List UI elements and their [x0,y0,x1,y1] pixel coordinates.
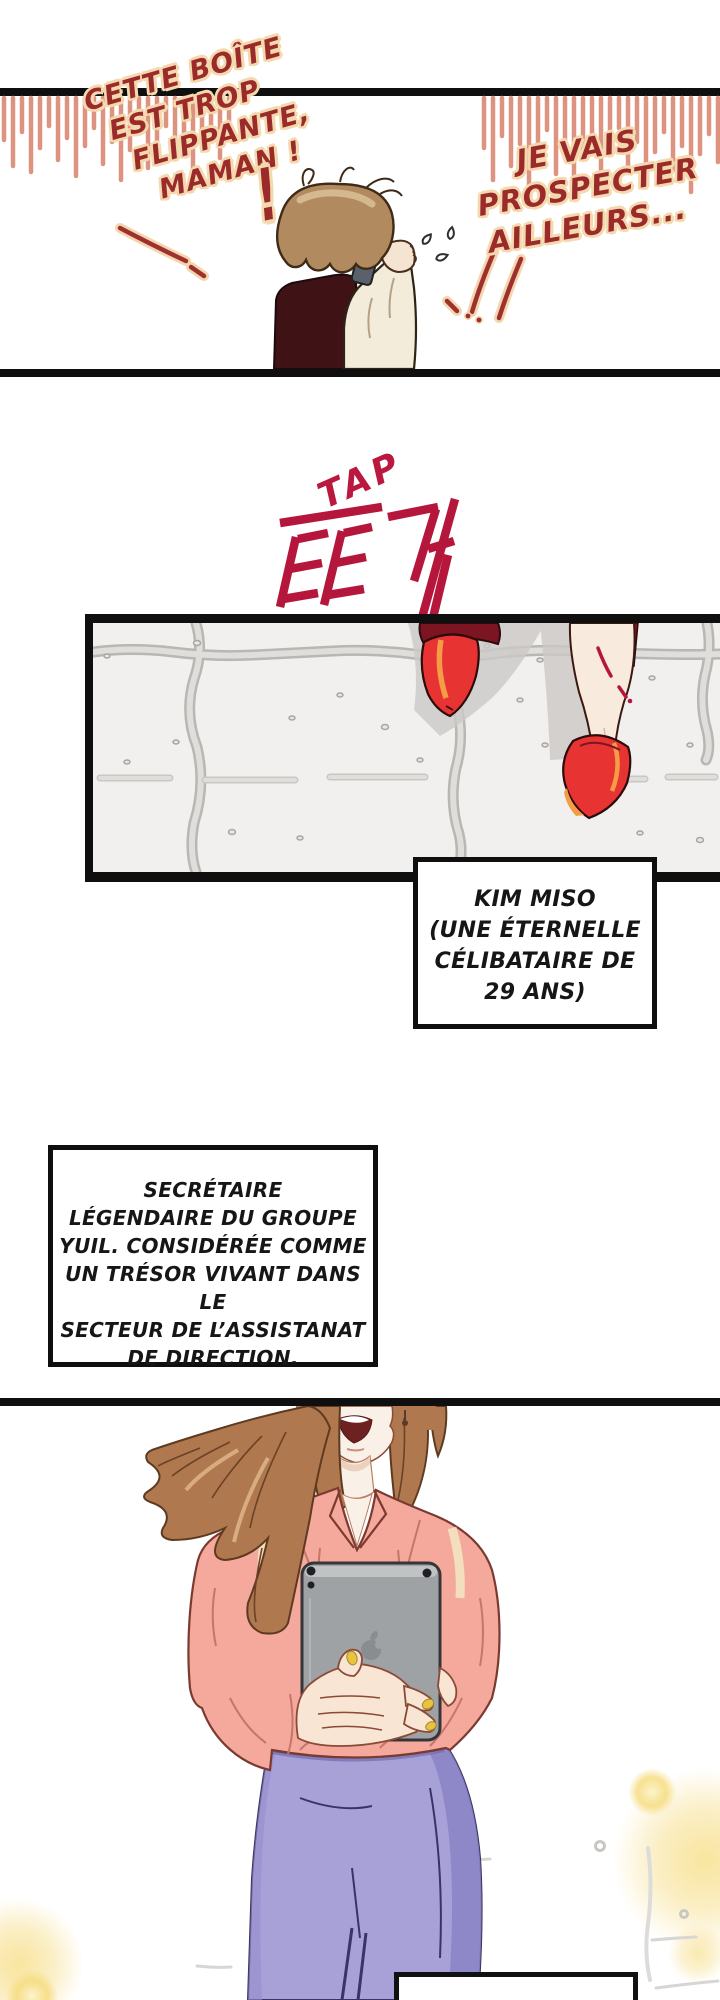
caption-line: CÉLIBATAIRE DE [418,946,652,977]
heels-panel-artwork [0,610,720,885]
phone-character-illustration [274,168,455,369]
woman-panel-artwork [0,1398,720,2000]
character-hair [277,184,393,273]
caption-box-bottom-partial [394,1972,638,2000]
caption-line: KIM MISO [418,884,652,915]
panel3-top-border [0,1398,720,1406]
sweat-drops [421,227,455,262]
caption-box-bio: SECRÉTAIRE LÉGENDAIRE DU GROUPE YUIL. CO… [48,1145,378,1367]
tablet-camera-dot [307,1567,316,1576]
caption-line: DE DIRECTION. [53,1344,373,1372]
caption-line: SECRÉTAIRE [53,1176,373,1204]
panel1-bottom-border [0,369,720,377]
caption-line: 29 ANS) [418,977,652,1008]
caption-box-kim-miso: KIM MISO (UNE ÉTERNELLE CÉLIBATAIRE DE 2… [413,857,657,1029]
heels-panel-border-top [85,614,720,623]
skirt [248,1748,482,2000]
caption-line: UN TRÉSOR VIVANT DANS LE [53,1260,373,1316]
caption-line: (UNE ÉTERNELLE [418,915,652,946]
caption-line: SECTEUR DE L’ASSISTANAT [53,1316,373,1344]
caption-line: YUIL. CONSIDÉRÉE COMME [53,1232,373,1260]
heels-panel-border-left [85,614,93,882]
caption-line: LÉGENDAIRE DU GROUPE [53,1204,373,1232]
comic-page: CETTE BOÎTE EST TROP FLIPPANTE, MAMAN ! … [0,0,720,2000]
